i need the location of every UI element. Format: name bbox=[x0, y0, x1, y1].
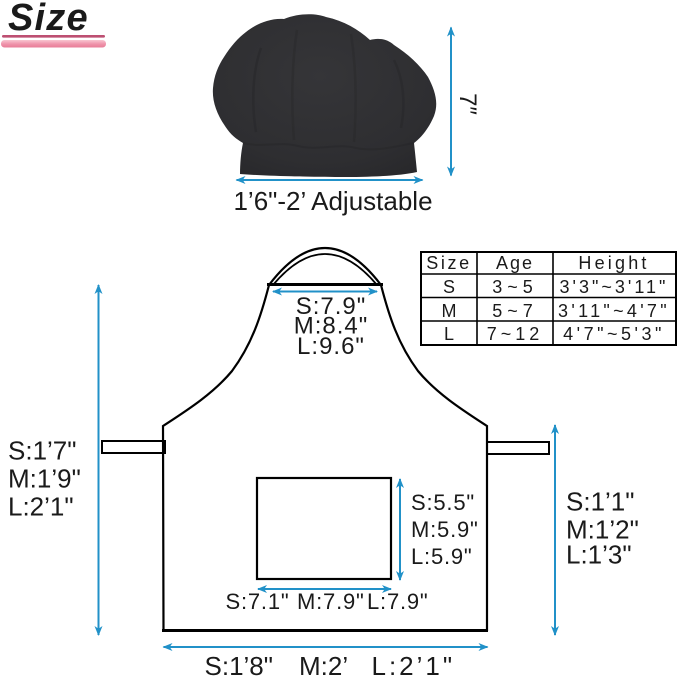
svg-text:M:2’: M:2’ bbox=[299, 651, 348, 678]
svg-text:S:5.5": S:5.5" bbox=[411, 490, 475, 515]
svg-text:L:5.9": L:5.9" bbox=[411, 544, 473, 569]
svg-text:M:1’9": M:1’9" bbox=[8, 464, 81, 494]
svg-text:3'3"~3'11": 3'3"~3'11" bbox=[560, 277, 669, 297]
svg-text:Size: Size bbox=[8, 0, 89, 39]
svg-text:M: M bbox=[442, 301, 457, 321]
svg-text:3~5: 3~5 bbox=[492, 277, 538, 297]
svg-text:L:7.9": L:7.9" bbox=[367, 589, 429, 614]
svg-text:L:1’3": L:1’3" bbox=[566, 540, 632, 570]
svg-text:M:7.9": M:7.9" bbox=[297, 589, 365, 614]
svg-text:L:2’1": L:2’1" bbox=[372, 651, 456, 678]
svg-text:7~12: 7~12 bbox=[487, 324, 544, 344]
svg-text:S:1’7": S:1’7" bbox=[8, 436, 77, 466]
svg-text:S: S bbox=[443, 277, 455, 297]
svg-text:Height: Height bbox=[578, 253, 649, 273]
svg-text:5~7: 5~7 bbox=[492, 301, 538, 321]
svg-text:S:1’8": S:1’8" bbox=[205, 651, 274, 678]
svg-text:1’6"-2’ Adjustable: 1’6"-2’ Adjustable bbox=[233, 186, 432, 216]
svg-text:L:2’1": L:2’1" bbox=[8, 492, 74, 522]
svg-text:S:1’1": S:1’1" bbox=[566, 487, 635, 517]
svg-text:7″: 7″ bbox=[454, 93, 481, 115]
svg-text:3'11"~4'7": 3'11"~4'7" bbox=[558, 301, 670, 321]
svg-text:L:9.6": L:9.6" bbox=[297, 333, 365, 360]
svg-text:4'7"~5'3": 4'7"~5'3" bbox=[563, 324, 665, 344]
svg-text:S:7.1": S:7.1" bbox=[226, 589, 290, 614]
svg-text:L: L bbox=[444, 324, 454, 344]
svg-text:Size: Size bbox=[426, 253, 471, 273]
svg-text:Age: Age bbox=[496, 253, 534, 273]
svg-text:M:5.9": M:5.9" bbox=[411, 517, 479, 542]
